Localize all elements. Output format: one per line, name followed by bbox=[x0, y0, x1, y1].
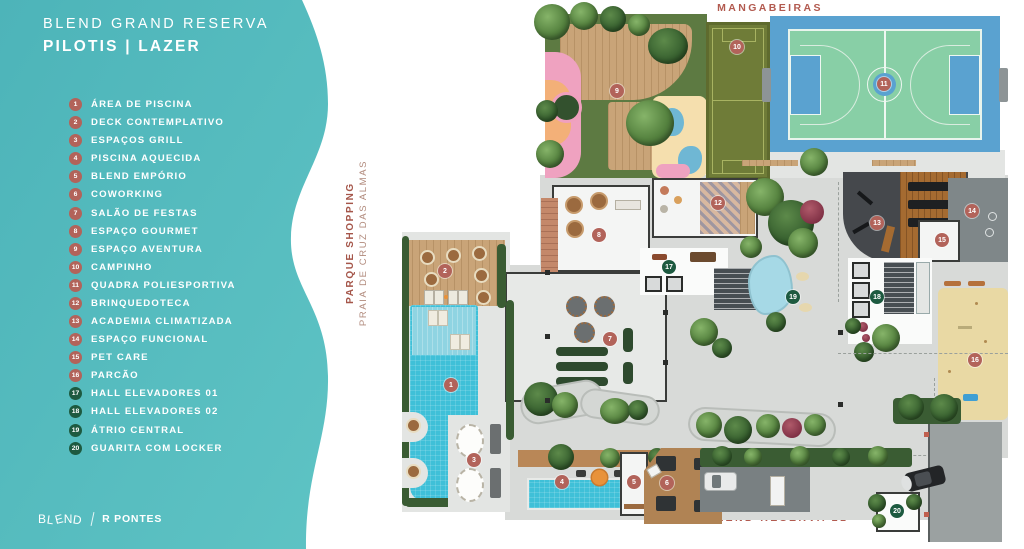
legend-label: HALL ELEVADORES 02 bbox=[91, 406, 219, 417]
legend-label: PET CARE bbox=[91, 352, 149, 363]
legend-badge: 15 bbox=[69, 351, 82, 364]
legend-item-10: 10CAMPINHO bbox=[69, 261, 236, 274]
legend-label: ESPAÇO FUNCIONAL bbox=[91, 334, 208, 345]
page-title: PILOTIS | LAZER bbox=[43, 38, 201, 56]
plan-marker-5: 5 bbox=[627, 475, 641, 489]
plan-marker-8: 8 bbox=[592, 228, 606, 242]
legend-item-16: 16PARCÃO bbox=[69, 369, 236, 382]
plan-marker-20: 20 bbox=[890, 504, 904, 518]
project-title: BLEND GRAND RESERVA bbox=[43, 16, 269, 32]
legend-badge: 8 bbox=[69, 225, 82, 238]
legend-badge: 1 bbox=[69, 98, 82, 111]
legend-item-6: 6COWORKING bbox=[69, 188, 236, 201]
legend-item-1: 1ÁREA DE PISCINA bbox=[69, 98, 236, 111]
legend-label: DECK CONTEMPLATIVO bbox=[91, 117, 224, 128]
legend-label: PISCINA AQUECIDA bbox=[91, 153, 201, 164]
legend-item-9: 9ESPAÇO AVENTURA bbox=[69, 243, 236, 256]
legend-badge: 19 bbox=[69, 424, 82, 437]
legend-badge: 7 bbox=[69, 207, 82, 220]
legend-label: BRINQUEDOTECA bbox=[91, 298, 191, 309]
plan-marker-13: 13 bbox=[870, 216, 884, 230]
legend-item-18: 18HALL ELEVADORES 02 bbox=[69, 405, 236, 418]
legend-badge: 20 bbox=[69, 442, 82, 455]
legend-badge: 2 bbox=[69, 116, 82, 129]
legend-badge: 6 bbox=[69, 188, 82, 201]
legend-badge: 4 bbox=[69, 152, 82, 165]
legend-badge: 17 bbox=[69, 387, 82, 400]
legend-item-8: 8ESPAÇO GOURMET bbox=[69, 225, 236, 238]
legend-label: ÁTRIO CENTRAL bbox=[91, 425, 184, 436]
legend-item-3: 3ESPAÇOS GRILL bbox=[69, 134, 236, 147]
legend-label: CAMPINHO bbox=[91, 262, 152, 273]
legend-label: GUARITA COM LOCKER bbox=[91, 443, 223, 454]
plan-marker-6: 6 bbox=[660, 476, 674, 490]
sidebar: BLEND GRAND RESERVA PILOTIS | LAZER 1ÁRE… bbox=[0, 0, 300, 549]
legend-badge: 16 bbox=[69, 369, 82, 382]
legend-item-15: 15PET CARE bbox=[69, 351, 236, 364]
rpontes-logo: R PONTES bbox=[102, 513, 162, 525]
legend-item-20: 20GUARITA COM LOCKER bbox=[69, 441, 236, 454]
legend-item-17: 17HALL ELEVADORES 01 bbox=[69, 387, 236, 400]
blend-logo: BLEND bbox=[38, 512, 83, 526]
plan-marker-3: 3 bbox=[467, 453, 481, 467]
legend-item-12: 12BRINQUEDOTECA bbox=[69, 297, 236, 310]
legend-label: PARCÃO bbox=[91, 370, 139, 381]
plan-marker-9: 9 bbox=[610, 84, 624, 98]
plan-marker-19: 19 bbox=[786, 290, 800, 304]
plan-marker-2: 2 bbox=[438, 264, 452, 278]
legend-badge: 14 bbox=[69, 333, 82, 346]
plan-marker-14: 14 bbox=[965, 204, 979, 218]
legend-item-7: 7SALÃO DE FESTAS bbox=[69, 206, 236, 219]
plan-marker-11: 11 bbox=[877, 77, 891, 91]
footer-logos: BLEND R PONTES bbox=[38, 512, 162, 526]
legend-label: SALÃO DE FESTAS bbox=[91, 208, 198, 219]
plan-marker-16: 16 bbox=[968, 353, 982, 367]
plan-marker-1: 1 bbox=[444, 378, 458, 392]
legend-badge: 5 bbox=[69, 170, 82, 183]
legend-label: BLEND EMPÓRIO bbox=[91, 171, 187, 182]
plan-marker-15: 15 bbox=[935, 233, 949, 247]
legend-label: ACADEMIA CLIMATIZADA bbox=[91, 316, 233, 327]
legend-badge: 9 bbox=[69, 243, 82, 256]
blend-logo-letter: D bbox=[72, 512, 84, 527]
legend-item-11: 11QUADRA POLIESPORTIVA bbox=[69, 279, 236, 292]
legend-badge: 13 bbox=[69, 315, 82, 328]
legend-item-19: 19ÁTRIO CENTRAL bbox=[69, 423, 236, 436]
plan-marker-7: 7 bbox=[603, 332, 617, 346]
legend-label: QUADRA POLIESPORTIVA bbox=[91, 280, 236, 291]
legend-item-5: 5BLEND EMPÓRIO bbox=[69, 170, 236, 183]
legend-list: 1ÁREA DE PISCINA2DECK CONTEMPLATIVO3ESPA… bbox=[69, 98, 236, 455]
legend-label: ÁREA DE PISCINA bbox=[91, 99, 193, 110]
legend-item-13: 13ACADEMIA CLIMATIZADA bbox=[69, 315, 236, 328]
legend-badge: 18 bbox=[69, 405, 82, 418]
plan-marker-12: 12 bbox=[711, 196, 725, 210]
legend-badge: 12 bbox=[69, 297, 82, 310]
plan-marker-4: 4 bbox=[555, 475, 569, 489]
legend-item-2: 2DECK CONTEMPLATIVO bbox=[69, 116, 236, 129]
legend-label: ESPAÇO AVENTURA bbox=[91, 244, 203, 255]
legend-label: ESPAÇOS GRILL bbox=[91, 135, 184, 146]
legend-label: ESPAÇO GOURMET bbox=[91, 226, 199, 237]
legend-badge: 10 bbox=[69, 261, 82, 274]
legend-badge: 11 bbox=[69, 279, 82, 292]
legend-badge: 3 bbox=[69, 134, 82, 147]
legend-item-4: 4PISCINA AQUECIDA bbox=[69, 152, 236, 165]
plan-marker-18: 18 bbox=[870, 290, 884, 304]
legend-label: HALL ELEVADORES 01 bbox=[91, 388, 219, 399]
plan-marker-17: 17 bbox=[662, 260, 676, 274]
legend-item-14: 14ESPAÇO FUNCIONAL bbox=[69, 333, 236, 346]
plan-marker-10: 10 bbox=[730, 40, 744, 54]
legend-label: COWORKING bbox=[91, 189, 163, 200]
logo-divider bbox=[91, 512, 95, 526]
